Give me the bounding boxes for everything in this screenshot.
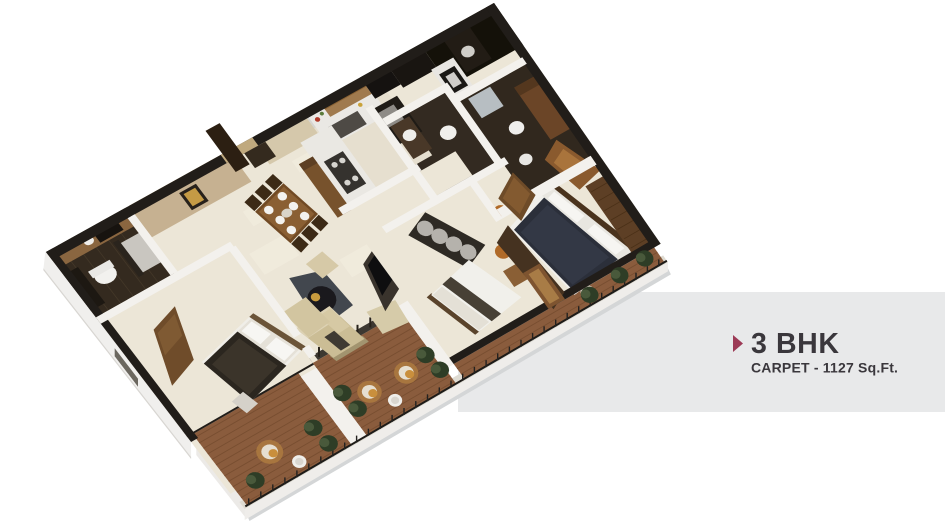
svg-text:CARPET - 1127 Sq.Ft.: CARPET - 1127 Sq.Ft. [751, 360, 898, 376]
svg-text:3 BHK: 3 BHK [751, 328, 840, 360]
